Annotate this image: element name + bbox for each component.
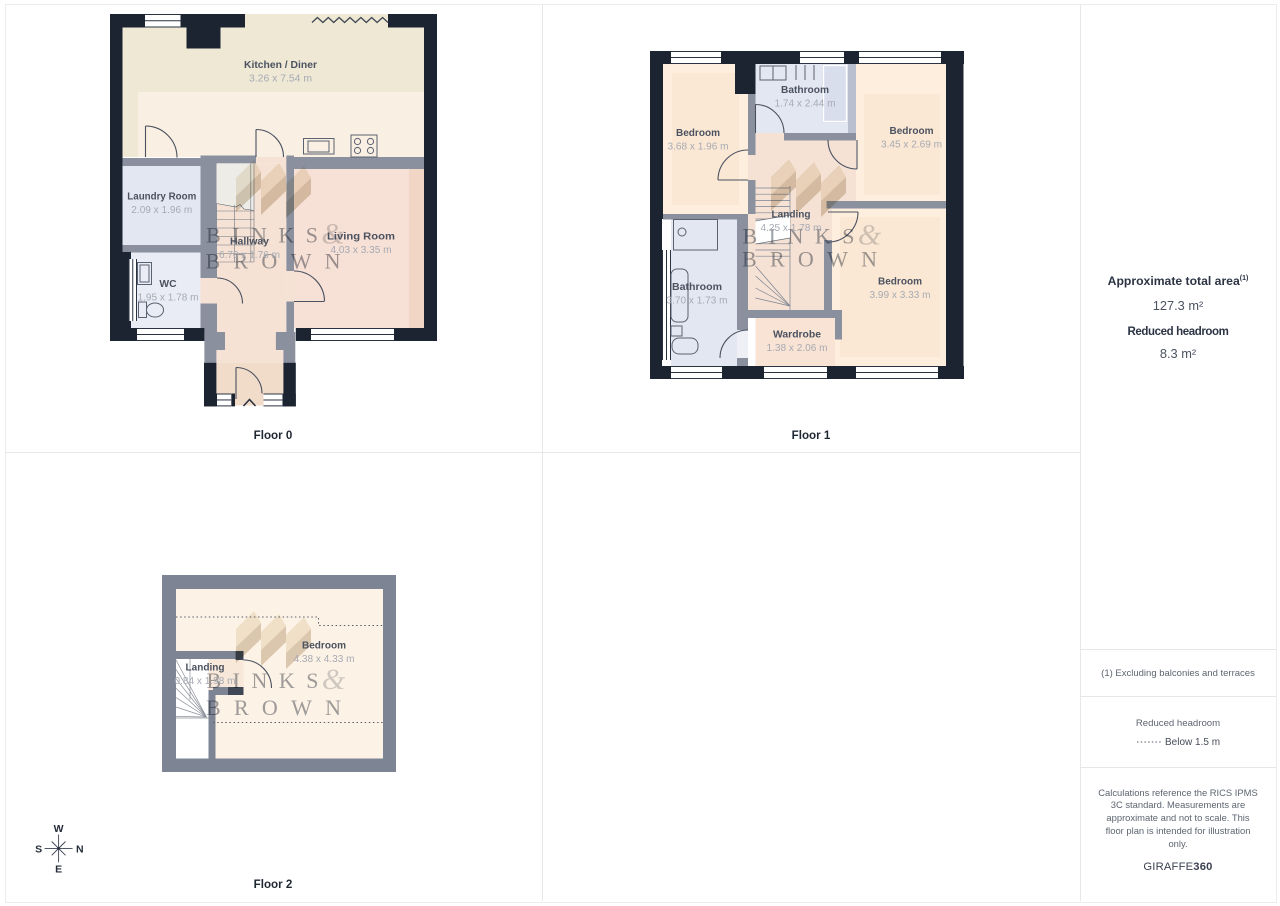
svg-text:3.26 x 7.54 m: 3.26 x 7.54 m — [249, 74, 312, 85]
svg-text:2.09 x 1.96 m: 2.09 x 1.96 m — [131, 205, 192, 216]
svg-text:1.95 x 1.78 m: 1.95 x 1.78 m — [138, 293, 199, 304]
svg-text:E: E — [55, 864, 62, 876]
svg-text:Bathroom: Bathroom — [672, 282, 722, 293]
svg-text:1.74 x 2.44 m: 1.74 x 2.44 m — [775, 99, 836, 110]
svg-text:S: S — [35, 844, 42, 856]
svg-text:4.38 x 4.33 m: 4.38 x 4.33 m — [294, 654, 355, 665]
svg-text:W: W — [54, 823, 64, 835]
svg-text:3.45 x 2.69 m: 3.45 x 2.69 m — [881, 140, 942, 151]
svg-text:Bedroom: Bedroom — [878, 277, 922, 288]
svg-text:Bathroom: Bathroom — [781, 85, 829, 96]
svg-text:Landing: Landing — [772, 210, 811, 221]
svg-text:Bedroom: Bedroom — [890, 126, 934, 137]
svg-text:Laundry Room: Laundry Room — [127, 192, 196, 203]
svg-text:0.84 x 1.98 m: 0.84 x 1.98 m — [175, 676, 236, 687]
svg-text:3.99 x 3.33 m: 3.99 x 3.33 m — [870, 290, 931, 301]
svg-text:3.68 x 1.96 m: 3.68 x 1.96 m — [668, 142, 729, 153]
svg-text:Landing: Landing — [186, 663, 225, 674]
svg-text:3.70 x 1.73 m: 3.70 x 1.73 m — [667, 296, 728, 307]
svg-text:6.70 x 1.76 m: 6.70 x 1.76 m — [219, 250, 280, 261]
svg-text:4.03 x 3.35 m: 4.03 x 3.35 m — [331, 245, 392, 256]
svg-text:&: & — [322, 663, 346, 696]
svg-text:4.25 x 1.78 m: 4.25 x 1.78 m — [761, 223, 822, 234]
svg-text:Living Room: Living Room — [327, 232, 395, 243]
svg-text:N: N — [76, 843, 84, 855]
svg-text:Hallway: Hallway — [230, 237, 269, 248]
svg-text:1.38 x 2.06 m: 1.38 x 2.06 m — [767, 343, 828, 354]
svg-text:Kitchen / Diner: Kitchen / Diner — [244, 60, 317, 71]
svg-text:Wardrobe: Wardrobe — [773, 330, 821, 341]
svg-text:Bedroom: Bedroom — [302, 640, 346, 651]
svg-text:Bedroom: Bedroom — [676, 128, 720, 139]
svg-text:WC: WC — [159, 279, 177, 290]
